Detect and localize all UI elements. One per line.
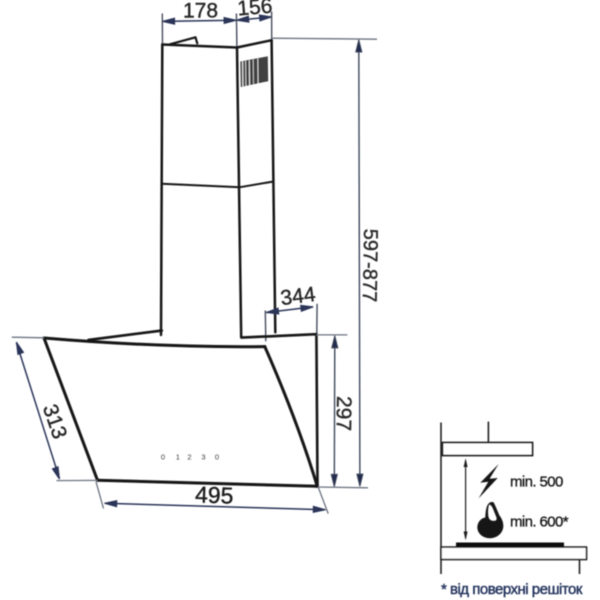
svg-text:297: 297 xyxy=(331,396,355,431)
svg-text:min. 600*: min. 600* xyxy=(510,514,569,531)
svg-text:0: 0 xyxy=(215,453,219,462)
svg-text:495: 495 xyxy=(195,481,234,508)
svg-text:156: 156 xyxy=(236,0,273,20)
svg-text:2: 2 xyxy=(187,453,191,462)
svg-text:1: 1 xyxy=(176,453,180,462)
svg-text:178: 178 xyxy=(183,0,218,23)
svg-text:597-877: 597-877 xyxy=(358,229,381,303)
svg-text:0: 0 xyxy=(161,453,165,462)
svg-text:3: 3 xyxy=(201,453,205,462)
svg-text:344: 344 xyxy=(279,283,317,310)
svg-text:* від поверхні решіток: * від поверхні решіток xyxy=(441,581,583,598)
svg-text:313: 313 xyxy=(38,401,71,442)
svg-text:min. 500: min. 500 xyxy=(510,474,563,491)
